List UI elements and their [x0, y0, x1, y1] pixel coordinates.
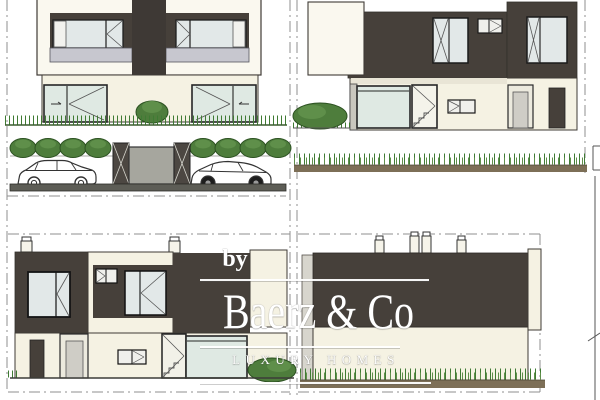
chimney	[21, 237, 32, 252]
inset-window-small	[96, 269, 117, 283]
upper-window-small	[478, 19, 502, 33]
bush-icon	[293, 103, 350, 129]
balcony-window-left	[53, 20, 123, 48]
stair-door	[412, 85, 437, 128]
gate-panel	[129, 147, 174, 184]
entrance-door	[508, 85, 533, 128]
upper-window-1	[433, 18, 468, 63]
bush-icon	[60, 139, 86, 158]
cream-panel-right	[528, 249, 541, 330]
architectural-drawing-sheet: by Baerz & Co LUXURY HOMES	[0, 0, 600, 400]
stair-door	[162, 334, 186, 378]
watermark-rule-top	[200, 279, 429, 281]
watermark-tagline: LUXURY HOMES	[200, 352, 432, 368]
chimney	[410, 232, 419, 253]
corner-frame-box	[308, 2, 364, 75]
dark-door-panel	[30, 340, 44, 378]
bush-icon	[35, 139, 61, 158]
bush-icon	[265, 139, 291, 158]
bush-icon	[215, 139, 241, 158]
bush-icon	[10, 139, 36, 158]
chimney	[422, 232, 431, 253]
upper-window-big	[28, 272, 70, 317]
watermark-rule-middle	[200, 346, 400, 348]
chimney	[457, 236, 466, 253]
bush-icon	[240, 139, 266, 158]
watermark-rule-bottom	[200, 382, 431, 384]
ground-window-small	[448, 100, 475, 113]
dark-door-panel	[549, 88, 565, 128]
wall-edge	[350, 84, 357, 130]
upper-window-2	[527, 17, 567, 63]
central-column	[132, 0, 166, 78]
dimension-arrow	[588, 333, 600, 341]
entrance-door	[60, 334, 88, 378]
grass-strip	[294, 159, 587, 172]
driveway-gate	[113, 143, 190, 184]
side-elevation-right	[293, 2, 587, 172]
bush-icon	[190, 139, 216, 158]
dimension-marks	[588, 146, 600, 400]
ground-window-pair	[118, 350, 146, 364]
balcony-window-right	[176, 20, 246, 48]
street-scene	[10, 139, 291, 192]
front-elevation	[5, 0, 291, 191]
bush-icon	[136, 101, 168, 123]
sill-band	[351, 78, 507, 84]
bush-icon	[85, 139, 111, 158]
ground-glass-door	[357, 86, 410, 128]
chimney	[375, 236, 384, 253]
earth-band	[294, 165, 587, 172]
chimney	[169, 237, 180, 253]
watermark-by: by	[213, 247, 257, 271]
elevations-svg	[0, 0, 600, 400]
balcony-railing-right	[166, 48, 249, 62]
balcony-railing-left	[50, 48, 132, 62]
inset-window-big	[125, 271, 166, 315]
road	[10, 184, 286, 191]
watermark-brand: Baerz & Co	[223, 288, 407, 334]
